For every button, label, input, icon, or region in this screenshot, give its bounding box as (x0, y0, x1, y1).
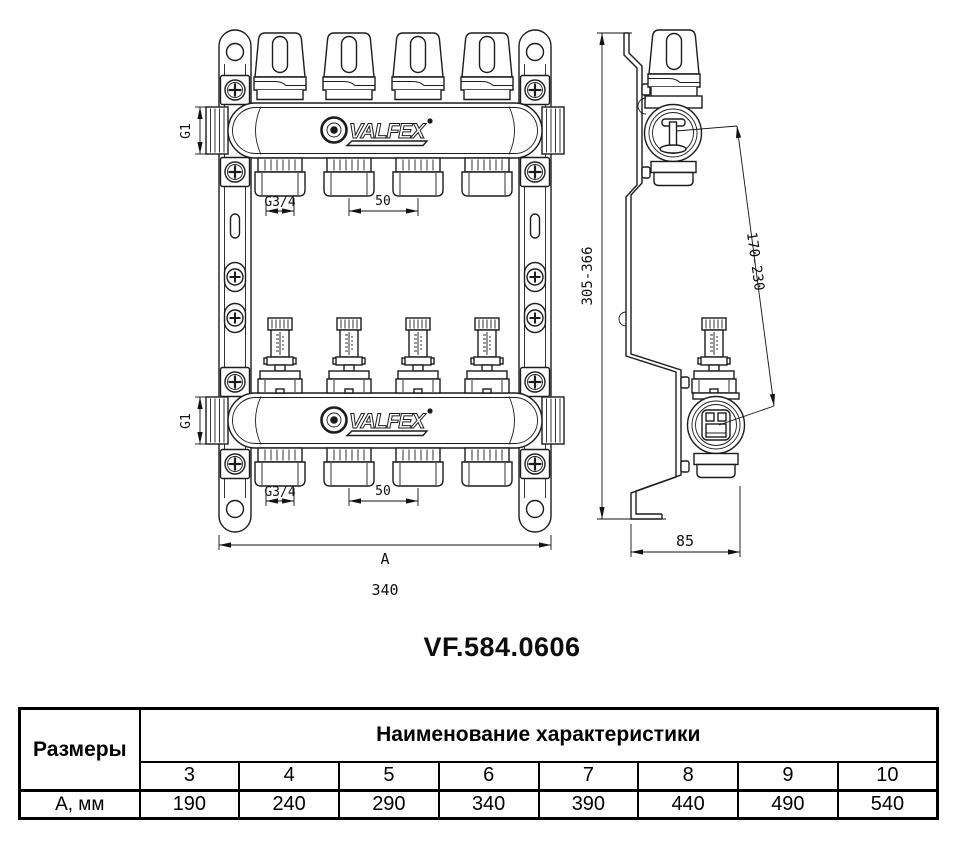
return-end-fitting (542, 397, 564, 444)
dim-50-bottom: 50 (349, 484, 418, 506)
value-cell: 390 (539, 791, 639, 819)
value-cell: 490 (738, 791, 838, 819)
front-view: G1 G1 G3/4 50 (179, 30, 564, 599)
product-code: VF.584.0606 (0, 632, 963, 663)
size-col: 5 (339, 762, 439, 791)
size-col: 7 (539, 762, 639, 791)
value-cell: 540 (838, 791, 938, 819)
table-col-header: Наименование характеристики (140, 709, 938, 762)
dim-bracket-depth: 85 (631, 486, 740, 557)
dim-depth-label: 170-230 (743, 231, 767, 292)
supply-end-fitting (542, 107, 564, 154)
size-col: 3 (140, 762, 240, 791)
dim-50-label: 50 (375, 194, 391, 209)
flow-meters (258, 318, 509, 393)
dim-height-label: 305-366 (580, 246, 596, 305)
datasheet-page: VALFEX (0, 0, 963, 843)
table-row-label: А, мм (20, 791, 140, 819)
technical-drawing: VALFEX (0, 0, 963, 615)
size-col: 6 (439, 762, 539, 791)
value-cell: 190 (140, 791, 240, 819)
dim-g34-label: G3/4 (264, 485, 295, 500)
side-valve-top (638, 30, 702, 186)
dim-g1-label: G1 (179, 413, 194, 429)
dim-50-top: 50 (349, 194, 418, 216)
return-outlets (255, 448, 512, 486)
value-cell: 440 (638, 791, 738, 819)
value-cell: 290 (339, 791, 439, 819)
return-inlet-g1 (206, 397, 228, 444)
supply-outlets (255, 158, 512, 196)
dim-a-width: A 340 (219, 535, 551, 599)
spec-table: Размеры Наименование характеристики 3 4 … (18, 707, 939, 820)
dim-85-label: 85 (676, 532, 694, 550)
side-view: 305-366 170-230 85 (580, 30, 774, 557)
dim-g34-top: G3/4 (264, 195, 295, 216)
dim-g1-bottom: G1 (179, 397, 207, 444)
size-col: 8 (638, 762, 738, 791)
dim-g34-bottom: G3/4 (264, 485, 295, 506)
size-col: 4 (239, 762, 339, 791)
dim-g1-top: G1 (179, 107, 207, 154)
valfex-logo-top (322, 118, 433, 146)
valfex-logo-bottom (322, 408, 433, 436)
dim-g34-label: G3/4 (264, 195, 295, 210)
dim-g1-label: G1 (179, 123, 194, 139)
size-col: 9 (738, 762, 838, 791)
value-cell: 240 (239, 791, 339, 819)
side-valve-bottom (688, 318, 745, 478)
size-col: 10 (838, 762, 938, 791)
table-row-header: Размеры (20, 709, 140, 791)
dim-50-label: 50 (375, 484, 391, 499)
dim-a-letter: A (380, 550, 389, 568)
value-cell: 340 (439, 791, 539, 819)
dim-a-value: 340 (371, 581, 398, 599)
valve-knobs (254, 33, 513, 100)
supply-inlet-g1 (206, 107, 228, 154)
